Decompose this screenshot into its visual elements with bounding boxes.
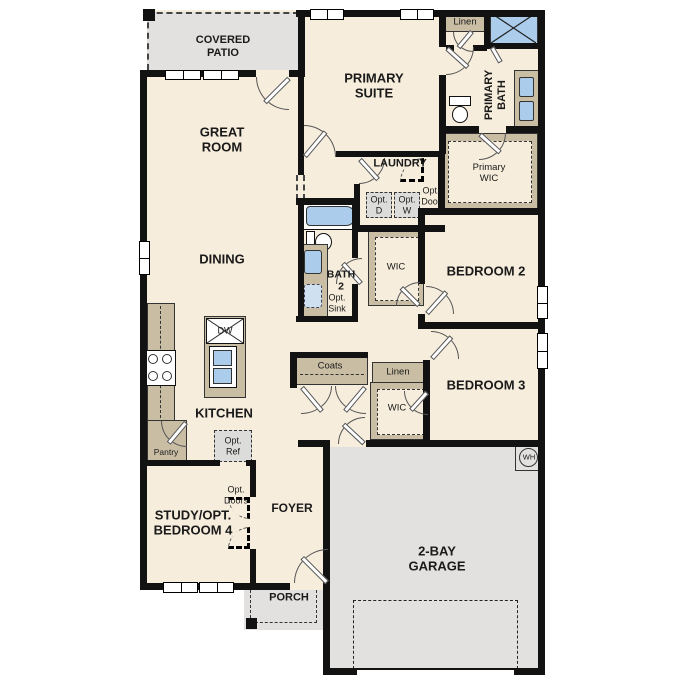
room-label-dining: DINING [199, 251, 245, 266]
closet-label-linen-upper: Linen [453, 16, 476, 27]
window [400, 9, 434, 20]
wall [418, 314, 425, 322]
burner [148, 354, 158, 364]
wall [418, 208, 538, 215]
wall [250, 549, 256, 590]
tub [306, 206, 356, 226]
burner [162, 354, 172, 364]
wall [336, 151, 445, 157]
option-label-opt-door: Opt. Door [421, 185, 441, 206]
room-label-great-room: GREAT ROOM [200, 125, 245, 156]
primary-sink [519, 77, 534, 97]
wall [484, 10, 490, 46]
window [165, 70, 201, 80]
room-label-bedroom2: BEDROOM 2 [447, 263, 526, 278]
room-label-primary-bath: PRIMARY BATH [483, 70, 509, 120]
room-label-covered-patio: COVERED PATIO [196, 34, 250, 60]
sink-basin [213, 350, 232, 366]
wall [506, 126, 538, 133]
coats-shelf-line [300, 374, 364, 375]
room-label-study: STUDY/OPT. BEDROOM 4 [154, 508, 233, 539]
wall [296, 316, 358, 322]
patio-post [143, 9, 155, 21]
primary-toilet-tank [449, 96, 471, 106]
burner [148, 371, 158, 381]
closet-label-primary-wic: Primary WIC [473, 162, 506, 184]
porch-post [246, 618, 257, 629]
wall [418, 322, 538, 329]
window [199, 582, 234, 593]
wall [366, 440, 538, 447]
option-label-opt-ref: Opt. Ref [224, 435, 241, 456]
shower-x-icon [491, 13, 536, 43]
window [310, 9, 344, 20]
window [139, 241, 150, 275]
wall [296, 198, 358, 205]
closet-label-pantry: Pantry [154, 447, 179, 457]
primary-sink [519, 101, 534, 121]
wall [352, 198, 358, 258]
appliance-label-dw: DW [218, 326, 233, 337]
closet-label-linen-hall: Linen [386, 366, 409, 377]
wall [418, 215, 425, 284]
cased-opening [296, 175, 305, 200]
room-label-bath2: BATH 2 [327, 269, 355, 294]
window [203, 70, 239, 80]
room-label-laundry: LAUNDRY [373, 158, 426, 171]
option-label-opt-dryer: Opt. D [370, 194, 387, 215]
wall [140, 70, 147, 590]
room-label-primary-suite: PRIMARY SUITE [344, 71, 403, 102]
room-label-porch: PORCH [269, 592, 309, 605]
wall [290, 352, 368, 358]
closet-label-wic2: WIC [387, 261, 405, 272]
wall [514, 668, 545, 675]
window [537, 333, 548, 369]
wall [439, 75, 446, 154]
wall [439, 10, 446, 47]
wall [250, 462, 256, 497]
stove [144, 350, 176, 386]
primary-toilet-bowl [452, 106, 468, 123]
closet-label-wic3: WIC [388, 402, 406, 413]
wall [298, 200, 304, 322]
closet-label-coats: Coats [318, 360, 343, 371]
window [537, 286, 548, 319]
room-label-bedroom3: BEDROOM 3 [447, 377, 526, 392]
garage-opening-line [355, 668, 516, 670]
wall [298, 10, 305, 77]
option-label-opt-doors: Opt. Doors [224, 484, 248, 505]
option-label-opt-washer: Opt. W [398, 194, 415, 215]
kitchen-sink [209, 346, 237, 388]
wall [290, 352, 297, 388]
wall [298, 440, 330, 447]
sink-basin [213, 368, 232, 384]
bath2-opt-sink [304, 284, 322, 308]
wall [473, 45, 487, 51]
wall [140, 460, 220, 466]
wall [439, 126, 479, 133]
floor-plan: COVERED PATIO GREAT ROOM PRIMARY SUITE P… [0, 0, 687, 687]
option-label-opt-sink: Opt. Sink [328, 292, 346, 313]
garage-door-path [353, 600, 518, 669]
room-label-kitchen: KITCHEN [195, 405, 253, 420]
appliance-label-wh: WH [523, 454, 536, 463]
wall [323, 668, 357, 675]
bath2-sink [304, 250, 322, 274]
room-label-garage: 2-BAY GARAGE [408, 544, 465, 575]
window [163, 582, 198, 593]
wall [354, 225, 445, 232]
room-label-foyer: FOYER [271, 501, 312, 515]
burner [162, 371, 172, 381]
